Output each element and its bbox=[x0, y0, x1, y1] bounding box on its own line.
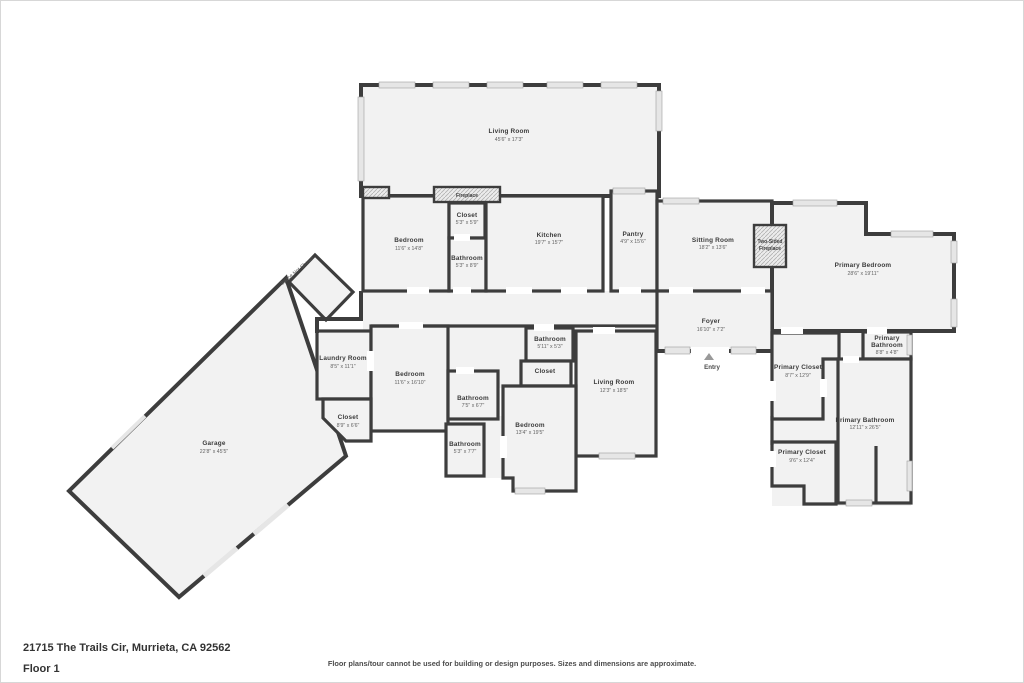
window-seat bbox=[363, 187, 389, 198]
room-dims: 16'10" x 7'2" bbox=[697, 327, 726, 333]
room-dims: 5'11" x 5'3" bbox=[537, 344, 562, 350]
room-bedroom-3 bbox=[503, 386, 576, 491]
room-dims: 5'3" x 8'9" bbox=[456, 263, 479, 269]
fireplace-label: Fireplace bbox=[456, 193, 478, 199]
room-label: Bathroom bbox=[534, 336, 566, 343]
room-label: Pantry bbox=[622, 231, 643, 238]
room-dims: 4'9" x 15'6" bbox=[620, 239, 646, 245]
room-label: Bathroom bbox=[451, 255, 483, 262]
room-dims: 22'8" x 45'5" bbox=[200, 449, 229, 455]
room-label: Primary Closet bbox=[778, 449, 827, 456]
room-dims: 28'6" x 19'11" bbox=[848, 271, 879, 277]
room-dims: 11'6" x 14'8" bbox=[395, 246, 423, 252]
two-sided-fireplace-label: Fireplace bbox=[759, 246, 781, 252]
room-dims: 8'8" x 4'8" bbox=[876, 350, 899, 356]
room-label: Primary Closet bbox=[774, 364, 823, 371]
room-dims: 9'6" x 12'4" bbox=[789, 458, 815, 464]
disclaimer-text: Floor plans/tour cannot be used for buil… bbox=[1, 659, 1023, 668]
room-label: Bathroom bbox=[871, 342, 903, 349]
room-label: Bathroom bbox=[457, 395, 489, 402]
room-label: Living Room bbox=[594, 379, 635, 386]
room-label: Foyer bbox=[702, 318, 721, 325]
room-dims: 7'5" x 6'7" bbox=[462, 403, 485, 409]
room-label: Closet bbox=[535, 368, 556, 375]
room-label: Closet bbox=[338, 414, 359, 421]
address-text: 21715 The Trails Cir, Murrieta, CA 92562 bbox=[23, 642, 230, 654]
room-label: Kitchen bbox=[537, 232, 562, 239]
entry-label: Entry bbox=[704, 364, 720, 371]
room-label: Garage bbox=[202, 440, 225, 447]
room-dims: 5'3" x 7'7" bbox=[454, 449, 477, 455]
room-bedroom-2 bbox=[371, 326, 448, 431]
room-label: Primary bbox=[874, 335, 899, 342]
room-dims: 18'2" x 13'6" bbox=[699, 245, 728, 251]
floor-plan-page: Living Room 45'6" x 17'3" Bedroom 11'6" … bbox=[0, 0, 1024, 683]
room-dims: 8'9" x 6'6" bbox=[337, 423, 360, 429]
room-dims: 45'6" x 17'3" bbox=[495, 137, 524, 143]
room-label: Closet bbox=[457, 212, 478, 219]
room-label: Primary Bedroom bbox=[835, 262, 892, 269]
room-dims: 8'5" x 11'1" bbox=[330, 364, 355, 370]
room-dims: 12'11" x 26'5" bbox=[850, 425, 881, 431]
room-dims: 5'3" x 5'9" bbox=[456, 220, 479, 226]
room-label: Laundry Room bbox=[319, 355, 367, 362]
room-dims: 19'7" x 15'7" bbox=[535, 240, 564, 246]
room-garage bbox=[69, 278, 346, 597]
floor-plan-canvas: Living Room 45'6" x 17'3" Bedroom 11'6" … bbox=[1, 1, 1024, 683]
room-label: Bedroom bbox=[515, 422, 545, 429]
room-dims: 8'7" x 12'9" bbox=[785, 373, 811, 379]
room-label: Living Room bbox=[489, 128, 530, 135]
room-dims: 13'4" x 19'5" bbox=[516, 430, 545, 436]
room-label: Bedroom bbox=[394, 237, 424, 244]
room-label: Bathroom bbox=[449, 441, 481, 448]
room-label: Bedroom bbox=[395, 371, 425, 378]
room-label: Sitting Room bbox=[692, 237, 734, 244]
room-dims: 11'6" x 16'10" bbox=[395, 380, 426, 386]
room-label: Primary Bathroom bbox=[836, 417, 895, 424]
room-dims: 12'3" x 18'5" bbox=[600, 388, 629, 394]
two-sided-fireplace-label: Two-Sided bbox=[758, 239, 783, 245]
